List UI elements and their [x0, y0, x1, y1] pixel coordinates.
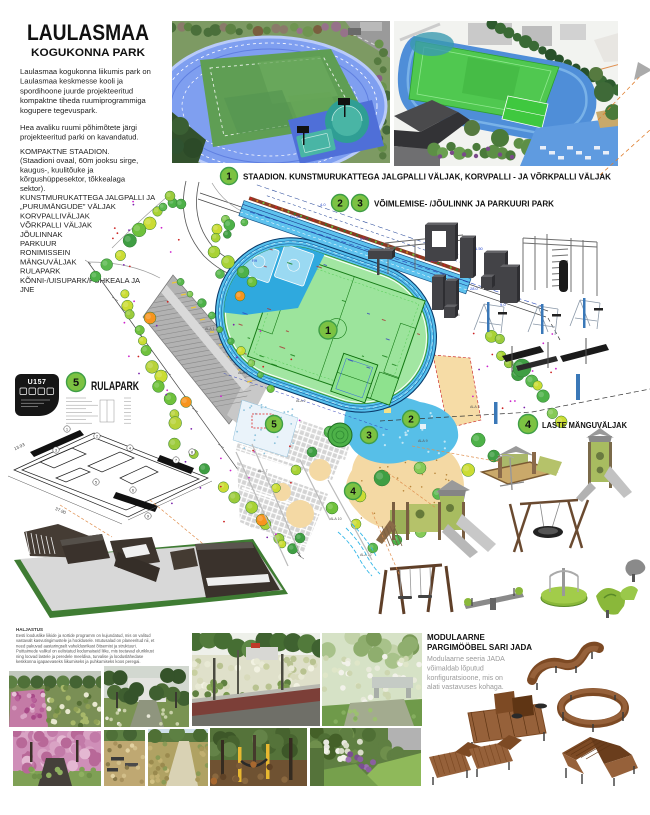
- svg-text:ALA 4: ALA 4: [238, 371, 248, 375]
- svg-text:RULAPARK: RULAPARK: [91, 381, 140, 393]
- svg-text:60.0: 60.0: [360, 236, 369, 241]
- svg-text:2: 2: [408, 415, 414, 426]
- svg-text:1.50: 1.50: [475, 246, 484, 251]
- svg-text:projekteeritud parki on kavand: projekteeritud parki on kavandatud.: [20, 133, 139, 142]
- svg-text:1: 1: [226, 172, 232, 183]
- svg-text:1: 1: [325, 325, 331, 337]
- svg-text:4: 4: [350, 487, 356, 498]
- svg-text:ALA 2: ALA 2: [296, 399, 306, 403]
- svg-text:JÕULINNAK: JÕULINNAK: [20, 230, 63, 239]
- svg-text:kompaktne tiheda ruumiprogramm: kompaktne tiheda ruumiprogrammiga: [20, 96, 147, 105]
- svg-text:„PURUMÄNGUDE” VÄLJAK: „PURUMÄNGUDE” VÄLJAK: [20, 202, 116, 211]
- svg-text:ALA 10: ALA 10: [330, 517, 342, 521]
- svg-text:KÕNNI-/UISUPARK/PUHKEALA JA: KÕNNI-/UISUPARK/PUHKEALA JA: [20, 276, 141, 285]
- svg-text:Laulasmaa kogukonna liikumis p: Laulasmaa kogukonna liikumis park on: [20, 67, 151, 76]
- svg-text:28.0: 28.0: [470, 286, 479, 291]
- svg-text:ALA 1: ALA 1: [205, 327, 215, 331]
- svg-text:kaugus-, kuulitõuke ja: kaugus-, kuulitõuke ja: [20, 165, 94, 174]
- svg-text:PARKUUR: PARKUUR: [20, 239, 57, 248]
- svg-text:LASTE MÄNGUVÄLJAK: LASTE MÄNGUVÄLJAK: [542, 420, 628, 430]
- svg-text:HALJASTUS: HALJASTUS: [16, 627, 43, 632]
- svg-text:RONIMISSEIN: RONIMISSEIN: [20, 248, 70, 257]
- svg-text:võimaldab lõputud: võimaldab lõputud: [427, 665, 484, 672]
- svg-text:ALA 3: ALA 3: [470, 405, 480, 409]
- svg-text:KUNSTMURUKATTEGA JALGPALLI JA: KUNSTMURUKATTEGA JALGPALLI JA: [20, 193, 156, 202]
- svg-text:(Staadioni ovaal, 60m jooksu s: (Staadioni ovaal, 60m jooksu sirge,: [20, 156, 138, 165]
- svg-text:STAADION. KUNSTMURUKATTEGA JAL: STAADION. KUNSTMURUKATTEGA JALGPALLI VÄL…: [243, 172, 612, 182]
- svg-text:3: 3: [357, 199, 363, 210]
- svg-text:2: 2: [337, 199, 343, 210]
- svg-text:LAULASMAA: LAULASMAA: [27, 20, 149, 45]
- svg-text:5: 5: [73, 377, 79, 389]
- svg-text:R9: R9: [252, 258, 258, 263]
- svg-text:5: 5: [271, 420, 277, 431]
- svg-text:MODULAARNE: MODULAARNE: [427, 633, 485, 642]
- svg-text:PARGIMÖÖBEL SARI JADA: PARGIMÖÖBEL SARI JADA: [427, 643, 532, 652]
- svg-text:Laulasmaa keskmesse kooli ja: Laulasmaa keskmesse kooli ja: [20, 77, 124, 86]
- svg-text:R1-60: R1-60: [290, 214, 302, 219]
- svg-text:VÕRKPALLI VÄLJAK: VÕRKPALLI VÄLJAK: [20, 221, 92, 230]
- svg-text:4.0: 4.0: [320, 202, 326, 207]
- svg-text:4: 4: [525, 419, 532, 431]
- svg-text:VÕIMLEMISE- /JÕULINNK JA PARKU: VÕIMLEMISE- /JÕULINNK JA PARKUURI PARK: [374, 199, 555, 209]
- svg-text:ALA 9: ALA 9: [418, 439, 428, 443]
- svg-text:keskkonna igapaevaseks liikumi: keskkonna igapaevaseks liikumiseks ja pu…: [16, 659, 141, 664]
- svg-text:U157: U157: [28, 379, 47, 386]
- svg-text:RULAPARK: RULAPARK: [20, 267, 60, 276]
- svg-text:sektor).: sektor).: [20, 184, 45, 193]
- svg-text:Modulaarne seeria JADA: Modulaarne seeria JADA: [427, 656, 505, 663]
- svg-text:MÄNGUVÄLJAK: MÄNGUVÄLJAK: [20, 257, 77, 266]
- svg-text:KOGUKONNA PARK: KOGUKONNA PARK: [31, 47, 145, 59]
- svg-text:KOMPAKTNE STAADION.: KOMPAKTNE STAADION.: [20, 147, 110, 156]
- svg-text:kõrgushüppesektor, tõkkealaga: kõrgushüppesektor, tõkkealaga: [20, 175, 126, 184]
- svg-text:spordihoone juurde projekteeri: spordihoone juurde projekteeritud: [20, 86, 133, 95]
- svg-text:konfiguratsioone, mis on: konfiguratsioone, mis on: [427, 675, 503, 682]
- svg-text:kogupere tegevuspark.: kogupere tegevuspark.: [20, 106, 97, 115]
- svg-text:Hea avaliku ruumi põhimõtete j: Hea avaliku ruumi põhimõtete järgi: [20, 123, 137, 132]
- svg-text:KORVPALLIVÄLJAK: KORVPALLIVÄLJAK: [20, 211, 90, 220]
- svg-text:JNE: JNE: [20, 285, 34, 294]
- svg-text:alati vastavuses kohaga.: alati vastavuses kohaga.: [427, 684, 504, 691]
- svg-text:3: 3: [366, 431, 372, 442]
